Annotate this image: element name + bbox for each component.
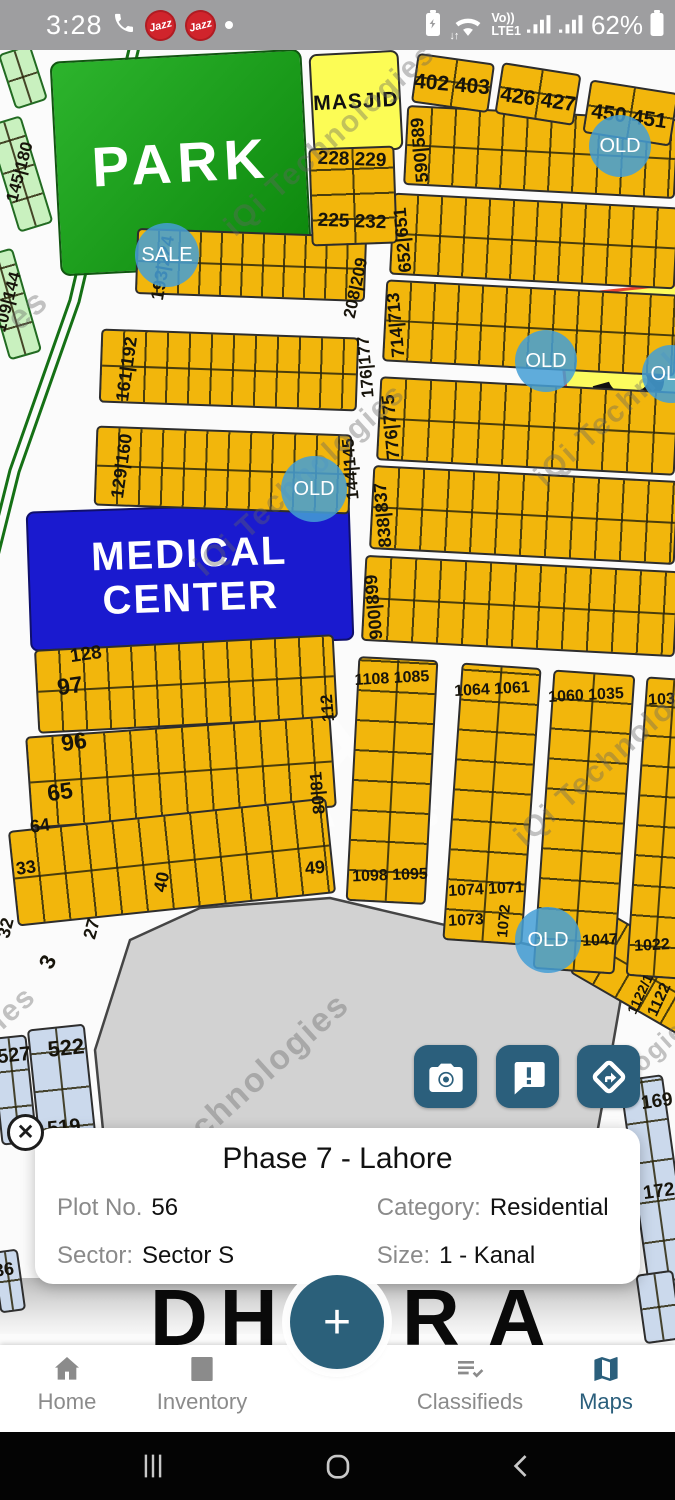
old-badge[interactable]: OLD [515,330,577,392]
category-field: Category:Residential [377,1194,618,1222]
size-field: Size:1 - Kanal [377,1242,618,1270]
plot-column[interactable] [0,50,48,110]
plus-icon: + [323,1295,351,1350]
plot-column[interactable] [442,663,541,946]
plot-number-label: 80|81 [306,771,330,815]
clock: 3:28 [46,10,103,41]
phone-call-icon [112,11,136,40]
battery-saver-icon [421,9,445,42]
plot-number-label: 1047 [582,931,618,951]
plot-number-label: 1073 [448,911,484,931]
plot-info-card: Phase 7 - Lahore Plot No.56 Category:Res… [35,1128,640,1284]
android-back-button[interactable] [499,1443,545,1489]
android-home-button[interactable] [315,1443,361,1489]
add-fab[interactable]: + [290,1275,384,1369]
old-badge[interactable]: OLD [515,907,581,973]
jazz-notification-icon: Jazz [141,6,179,44]
plot-number-label: 1098 1095 [352,866,428,887]
plot-number-label: 32 [0,916,19,941]
home-circle-icon [321,1449,355,1483]
plot-number-label: 128 [69,642,103,668]
plot-number-label: 3 [34,951,63,973]
inventory-icon [186,1353,218,1385]
wifi-traffic-arrows-icon: ↓↑ [449,30,458,42]
nav-home[interactable]: Home [2,1353,132,1415]
plot-number-label: 522 [46,1033,85,1063]
old-badge[interactable]: OLD [281,456,347,522]
back-chevron-icon [505,1449,539,1483]
directions-button[interactable] [577,1045,640,1108]
plot-column[interactable] [0,1248,26,1313]
wifi-icon: ↓↑ [451,10,485,40]
maps-icon [590,1353,622,1385]
plot-number-label: 172 [642,1179,675,1205]
plot-number-label: 96 [59,727,88,757]
plot-number-label: 33 [15,856,38,880]
card-title: Phase 7 - Lahore [57,1142,618,1176]
plot-number-label: 27 [79,917,104,942]
camera-icon [426,1057,466,1097]
app-screen: 3:28 Jazz Jazz ↓↑ Vo)) LTE1 [0,0,675,1500]
plot-number-label: 64 [29,814,52,838]
status-bar: 3:28 Jazz Jazz ↓↑ Vo)) LTE1 [0,0,675,50]
plot-number-label: 527 [0,1043,32,1069]
volte-indicator: Vo)) LTE1 [491,12,521,38]
nav-maps[interactable]: Maps [541,1353,671,1415]
plot-row[interactable] [389,193,675,290]
plot-number-label: 40 [150,870,175,894]
plot-number-label: 49 [304,857,326,880]
nav-classifieds[interactable]: Classifieds [405,1353,535,1415]
plot-row[interactable] [361,555,675,657]
plot-number-label: 169 [640,1089,674,1115]
plot-number-field: Plot No.56 [57,1194,377,1222]
notification-dot-icon [225,21,233,29]
close-icon: ✕ [17,1120,35,1145]
android-recents-button[interactable] [130,1443,176,1489]
classifieds-icon [454,1353,486,1385]
signal-bars-sim1-icon [527,12,553,39]
plot-number-label: 225 232 [317,210,386,234]
signal-bars-sim2-icon [559,12,585,39]
plot-number-label: 65 [45,777,74,807]
sale-badge[interactable]: SALE [135,223,199,287]
plot-number-label: 112 [317,693,339,722]
map-area-title: MEDICAL CENTER [90,529,289,624]
jazz-notification-icon: Jazz [181,6,219,44]
report-message-icon [508,1057,548,1097]
recents-icon [136,1449,170,1483]
plot-number-label: 97 [55,671,84,701]
home-icon [51,1353,83,1385]
battery-percentage: 62% [591,10,643,41]
plot-number-label: 1072 [494,904,514,939]
camera-button[interactable] [414,1045,477,1108]
plot-row[interactable] [369,465,675,565]
sector-field: Sector:Sector S [57,1242,377,1270]
plot-number-label: 36 [0,1258,15,1282]
android-navigation-bar [0,1432,675,1500]
close-card-button[interactable]: ✕ [7,1114,44,1151]
map-area-title: PARK [90,127,272,198]
plot-number-label: 1022 [634,936,670,956]
battery-icon [649,9,665,42]
map-area-medical-center[interactable]: MEDICAL CENTER [26,500,355,651]
directions-icon [589,1057,629,1097]
nav-inventory[interactable]: Inventory [137,1353,267,1415]
old-badge[interactable]: OLD [589,115,651,177]
report-button[interactable] [496,1045,559,1108]
